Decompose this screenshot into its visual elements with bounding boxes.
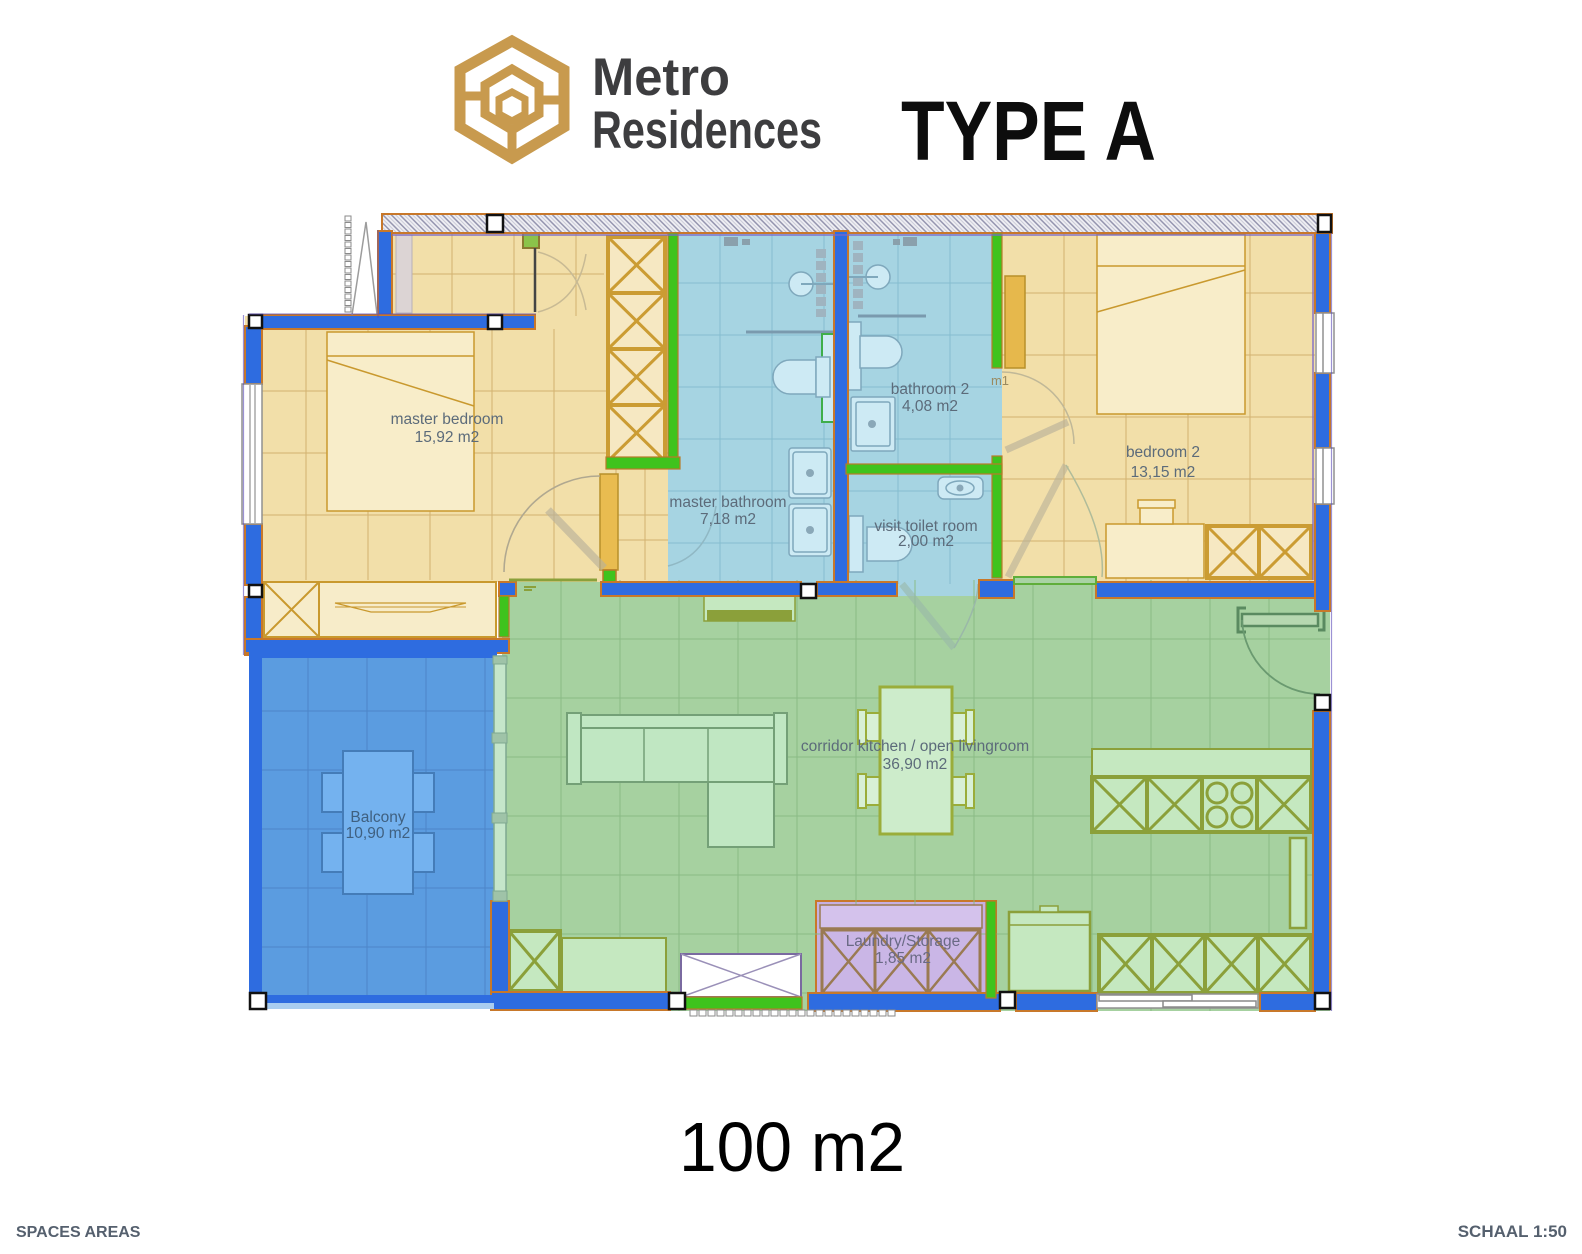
svg-text:100 m2: 100 m2 (679, 1108, 905, 1186)
svg-text:15,92 m2: 15,92 m2 (415, 429, 480, 446)
svg-text:4,08 m2: 4,08 m2 (902, 398, 958, 415)
svg-text:Metro: Metro (592, 48, 730, 107)
svg-text:master bedroom: master bedroom (391, 411, 504, 428)
svg-text:SCHAAL 1:50: SCHAAL 1:50 (1458, 1222, 1567, 1241)
svg-text:Residences: Residences (592, 101, 822, 160)
svg-text:7,18 m2: 7,18 m2 (700, 511, 756, 528)
svg-text:1,85 m2: 1,85 m2 (875, 950, 931, 967)
svg-text:Balcony: Balcony (350, 809, 405, 826)
svg-text:10,90 m2: 10,90 m2 (346, 825, 411, 842)
svg-text:Laundry/Storage: Laundry/Storage (846, 933, 961, 950)
svg-text:SPACES AREAS: SPACES AREAS (16, 1224, 141, 1241)
svg-text:TYPE A: TYPE A (901, 84, 1156, 178)
svg-text:corridor kitchen / open living: corridor kitchen / open livingroom (801, 738, 1029, 755)
svg-text:13,15 m2: 13,15 m2 (1131, 464, 1196, 481)
svg-text:2,00 m2: 2,00 m2 (898, 533, 954, 550)
svg-text:master bathroom: master bathroom (669, 494, 786, 511)
svg-text:bathroom 2: bathroom 2 (891, 381, 969, 398)
svg-text:m1: m1 (991, 373, 1009, 388)
svg-text:bedroom 2: bedroom 2 (1126, 444, 1200, 461)
svg-text:36,90 m2: 36,90 m2 (883, 756, 948, 773)
